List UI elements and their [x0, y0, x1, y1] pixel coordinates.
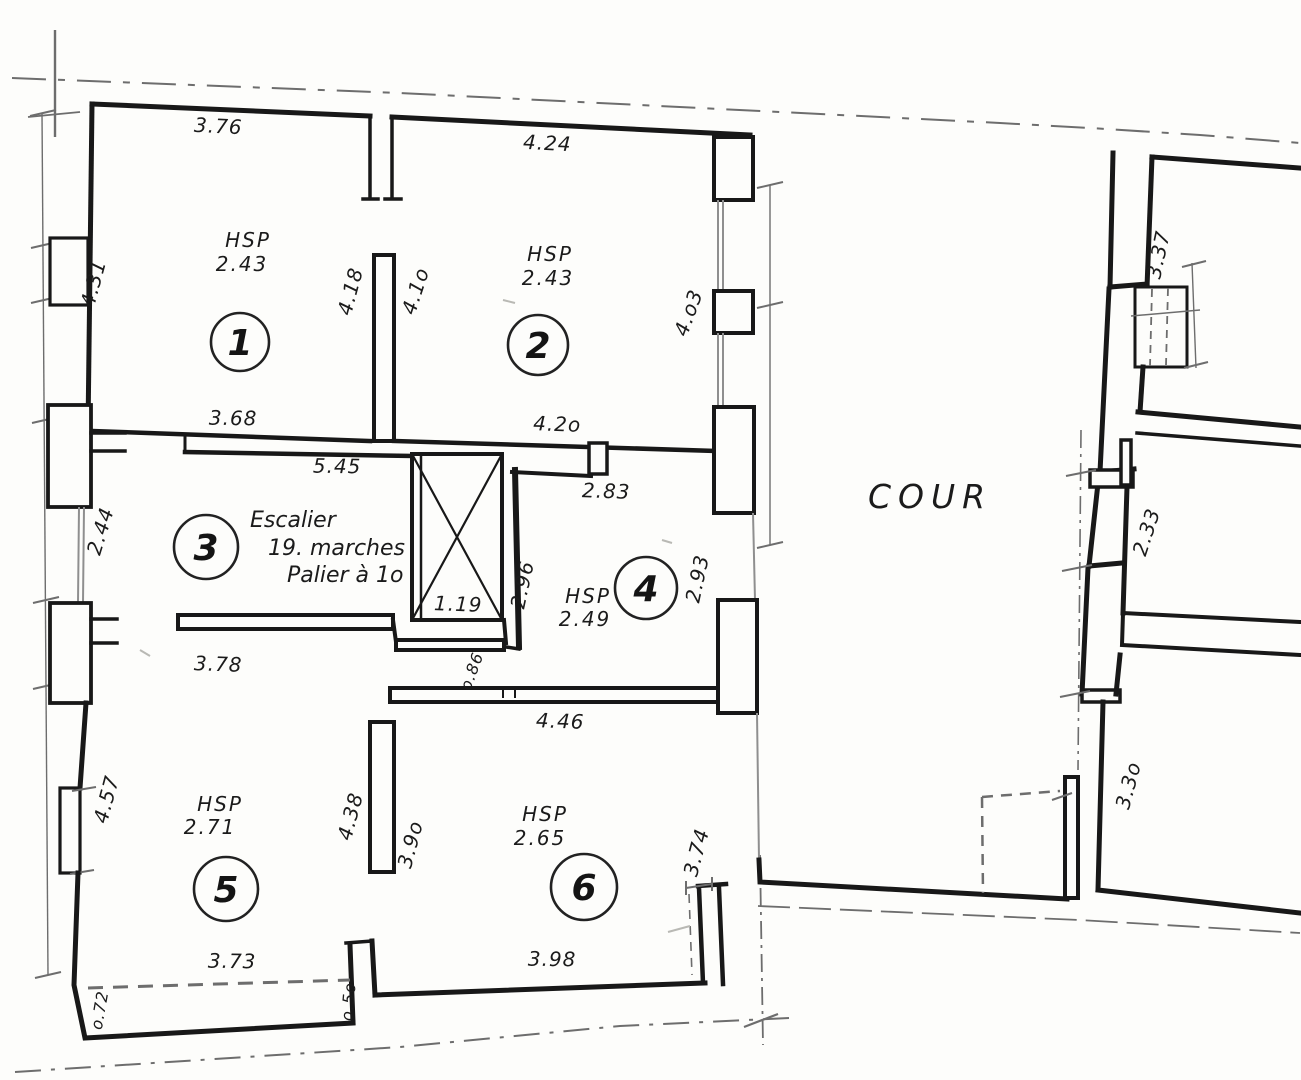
room1-number: 1: [227, 323, 252, 364]
floor-plan-canvas: 1 2 3 4 5 6 HSP 2.43 HSP 2.43 HSP 2.49 H…: [0, 0, 1301, 1080]
room4-hsp-title: HSP: [565, 584, 611, 608]
room6-hsp-value: 2.65: [514, 826, 567, 850]
courtyard-south-wall: [759, 860, 1067, 899]
dim-wall56-left: 4.38: [332, 790, 368, 843]
east-dashdot-line: [1078, 430, 1081, 770]
staircase-note-line2: 19. marches: [268, 536, 405, 561]
room4-number: 4: [632, 569, 658, 610]
window-room5: [60, 788, 80, 873]
dim-room5-left: 4.57: [88, 773, 124, 826]
scanned-floor-plan: 1 2 3 4 5 6 HSP 2.43 HSP 2.43 HSP 2.49 H…: [0, 0, 1301, 1080]
dim-room2-top: 4.24: [523, 130, 573, 157]
pier-room4-north: [589, 443, 607, 474]
chimney-block: [714, 291, 753, 333]
room1-hsp-title: HSP: [225, 228, 271, 252]
west-pier-room3-upper: [48, 405, 91, 507]
room6-hsp-title: HSP: [522, 802, 568, 826]
dim-room2-bottom: 4.2o: [533, 411, 582, 437]
pier-room2-northeast: [714, 137, 753, 200]
dim-room3-left: 2.44: [82, 504, 119, 557]
room6-east-wall: [698, 884, 726, 984]
divider-room2-room4-upper: [394, 441, 718, 451]
room4-hsp-value: 2.49: [559, 607, 612, 631]
pier-room2-room4: [714, 407, 754, 513]
dim-shaft-width: 1.19: [434, 591, 483, 617]
dim-room6-right: 3.74: [678, 826, 714, 879]
west-pier-room3-lower: [50, 603, 91, 703]
east-rooms-west-wall-mid: [1140, 367, 1143, 412]
staircase-note: Escalier 19. marches Palier à 1o: [250, 508, 405, 588]
window-room3: [78, 507, 84, 603]
dim-room2-right: 4.o3: [669, 286, 708, 339]
divider-room1-room2: [374, 255, 394, 441]
dim-wall12-right: 4.1o: [397, 264, 435, 317]
wall-below-shaft: [396, 640, 504, 650]
room2-hsp-title: HSP: [527, 242, 573, 266]
east-dashdot-ticks: [1060, 470, 1096, 697]
room1-hsp-value: 2.43: [216, 252, 269, 276]
room2-number: 2: [525, 326, 550, 367]
east-dim-line: [1192, 263, 1196, 368]
dim-room56-gap: o.5o: [337, 981, 359, 1021]
divider-room2-room4-lower: [512, 472, 591, 476]
window-room2-upper: [718, 200, 723, 291]
divider-room5-room6: [370, 722, 394, 872]
east-window-box: [1135, 287, 1187, 367]
east-pier-b: [1121, 440, 1131, 485]
room6-south-wall: [375, 983, 705, 995]
room5-number: 5: [213, 870, 238, 911]
south-boundary-line: [15, 1018, 790, 1072]
west-dim-line: [42, 113, 48, 975]
dim-room4-left: 2.96: [505, 558, 539, 610]
dim-wall56-right: 3.9o: [392, 818, 428, 871]
east-block-walls: [1060, 153, 1300, 913]
courtyard-west-wall: [714, 137, 1078, 899]
divider-room3-room5: [178, 615, 393, 629]
divider-room1-room3-upper: [92, 431, 370, 441]
dim-room4-right: 2.93: [680, 552, 714, 604]
east-rooms-west-wall-lower: [1123, 487, 1127, 613]
interior-walls: [92, 255, 755, 1022]
east-room-divider-a2: [1137, 433, 1300, 446]
dim-room1-top: 3.76: [194, 113, 244, 140]
divider-room1-room3-lower: [185, 452, 412, 456]
dim-room5-bottom: 3.73: [208, 949, 257, 974]
dim-wall12-left: 4.18: [332, 265, 368, 318]
room6-number: 6: [571, 868, 596, 909]
room3-number: 3: [193, 528, 218, 569]
dim-room6-bottom: 3.98: [528, 947, 577, 972]
dim-room3-top: 5.45: [313, 454, 362, 479]
pier-room4-southeast: [718, 600, 757, 713]
dim-room3-bottom: 3.78: [194, 651, 243, 677]
northeast-exterior-wall: [1152, 157, 1300, 168]
staircase-note-line1: Escalier: [250, 508, 338, 533]
dim-east-room-bottom: 3.3o: [1110, 759, 1146, 812]
courtyard-dashed-structure: [982, 791, 1060, 893]
dim-room4-top: 2.83: [582, 478, 631, 504]
dim-east-room-top: 3.37: [1141, 228, 1175, 280]
dim-room1-bottom: 3.68: [209, 406, 258, 431]
room6-dim-dashed: [689, 894, 692, 975]
room5-hsp-title: HSP: [197, 792, 243, 816]
dim-east-room-mid: 2.33: [1127, 505, 1165, 559]
east-room-divider-a: [1138, 412, 1300, 427]
east-wall-segment: [1116, 655, 1120, 694]
pier-cap: [346, 941, 372, 943]
window-room2-lower: [718, 333, 723, 407]
west-wall-mid: [80, 703, 86, 788]
southeast-boundary-line: [758, 906, 1300, 933]
dim-room6-top: 4.46: [536, 708, 585, 734]
room2-hsp-value: 2.43: [522, 266, 575, 290]
east-room-divider-b: [1122, 613, 1300, 655]
room5-interior-dashed-line: [88, 980, 350, 988]
courtyard-label: COUR: [868, 477, 992, 516]
courtyard-wall-opening: [757, 713, 759, 860]
divider-room4-room6: [390, 688, 755, 702]
flue-stub-rooms-1-2: [363, 116, 401, 199]
shaft-wall-extension: [504, 620, 506, 643]
staircase-note-line3: Palier à 1o: [287, 563, 403, 588]
room5-hsp-value: 2.71: [184, 815, 237, 839]
dim-room5-corner: o.72: [87, 989, 113, 1031]
window-room4: [753, 513, 755, 600]
